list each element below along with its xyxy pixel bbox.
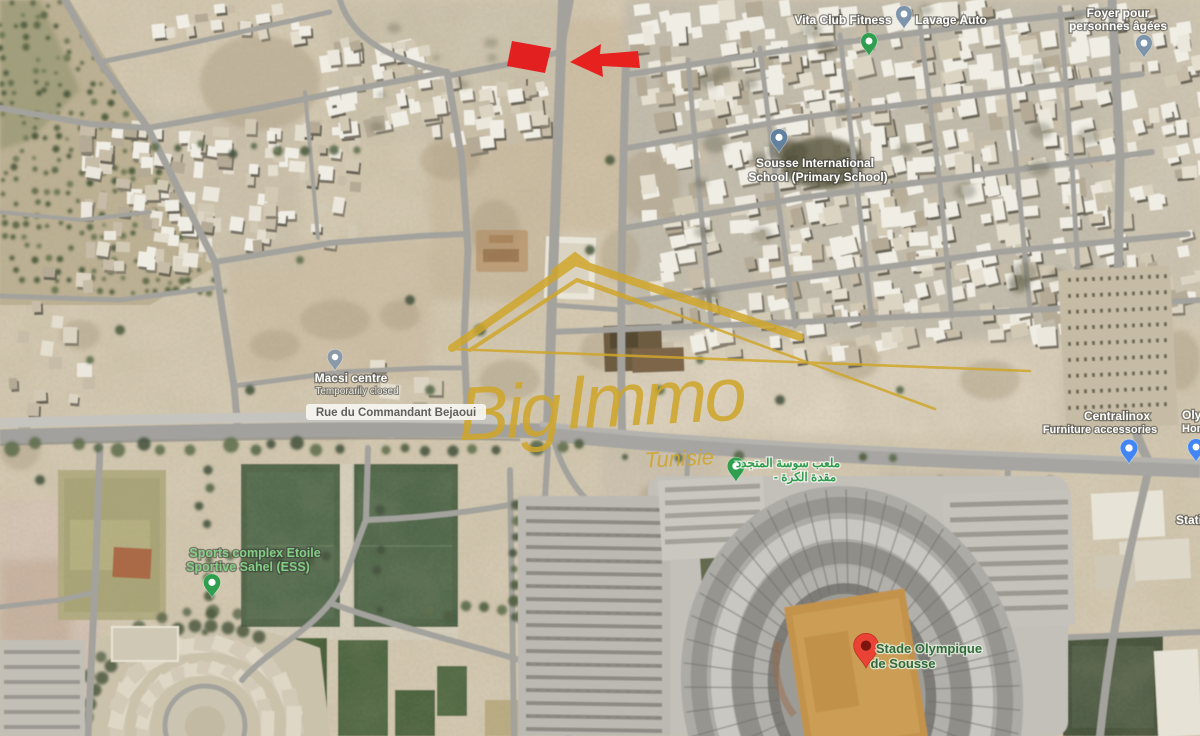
svg-text:Centralinox: Centralinox <box>1084 409 1150 423</box>
svg-text:ملعب سوسة المتجدد: ملعب سوسة المتجدد <box>736 456 840 471</box>
svg-text:Furniture accessories: Furniture accessories <box>1043 424 1157 436</box>
svg-text:Rue du Commandant Bejaoui: Rue du Commandant Bejaoui <box>316 407 476 419</box>
svg-text:Sportive Sahel (ESS): Sportive Sahel (ESS) <box>186 560 310 574</box>
svg-text:Temporarily closed: Temporarily closed <box>315 386 398 397</box>
svg-text:Stade Olympique: Stade Olympique <box>876 641 982 656</box>
svg-text:Stati: Stati <box>1176 513 1200 527</box>
svg-text:Macsi centre: Macsi centre <box>315 371 388 385</box>
svg-text:Lavage Auto: Lavage Auto <box>915 13 987 27</box>
svg-text:School (Primary School): School (Primary School) <box>748 170 887 184</box>
svg-text:Olym: Olym <box>1182 408 1200 422</box>
svg-text:- مقدة الكرة: - مقدة الكرة <box>774 470 836 485</box>
svg-text:Immo: Immo <box>563 351 746 445</box>
svg-text:Sports complex Etoile: Sports complex Etoile <box>189 546 320 560</box>
svg-text:Tunisie: Tunisie <box>644 444 715 473</box>
svg-text:de Sousse: de Sousse <box>870 656 935 671</box>
svg-text:Hom: Hom <box>1182 423 1200 435</box>
svg-text:Foyer pour: Foyer pour <box>1087 6 1150 20</box>
svg-text:Vita Club Fitness: Vita Club Fitness <box>794 13 891 27</box>
svg-text:personnes âgées: personnes âgées <box>1069 19 1167 33</box>
svg-text:Sousse International: Sousse International <box>756 156 874 170</box>
